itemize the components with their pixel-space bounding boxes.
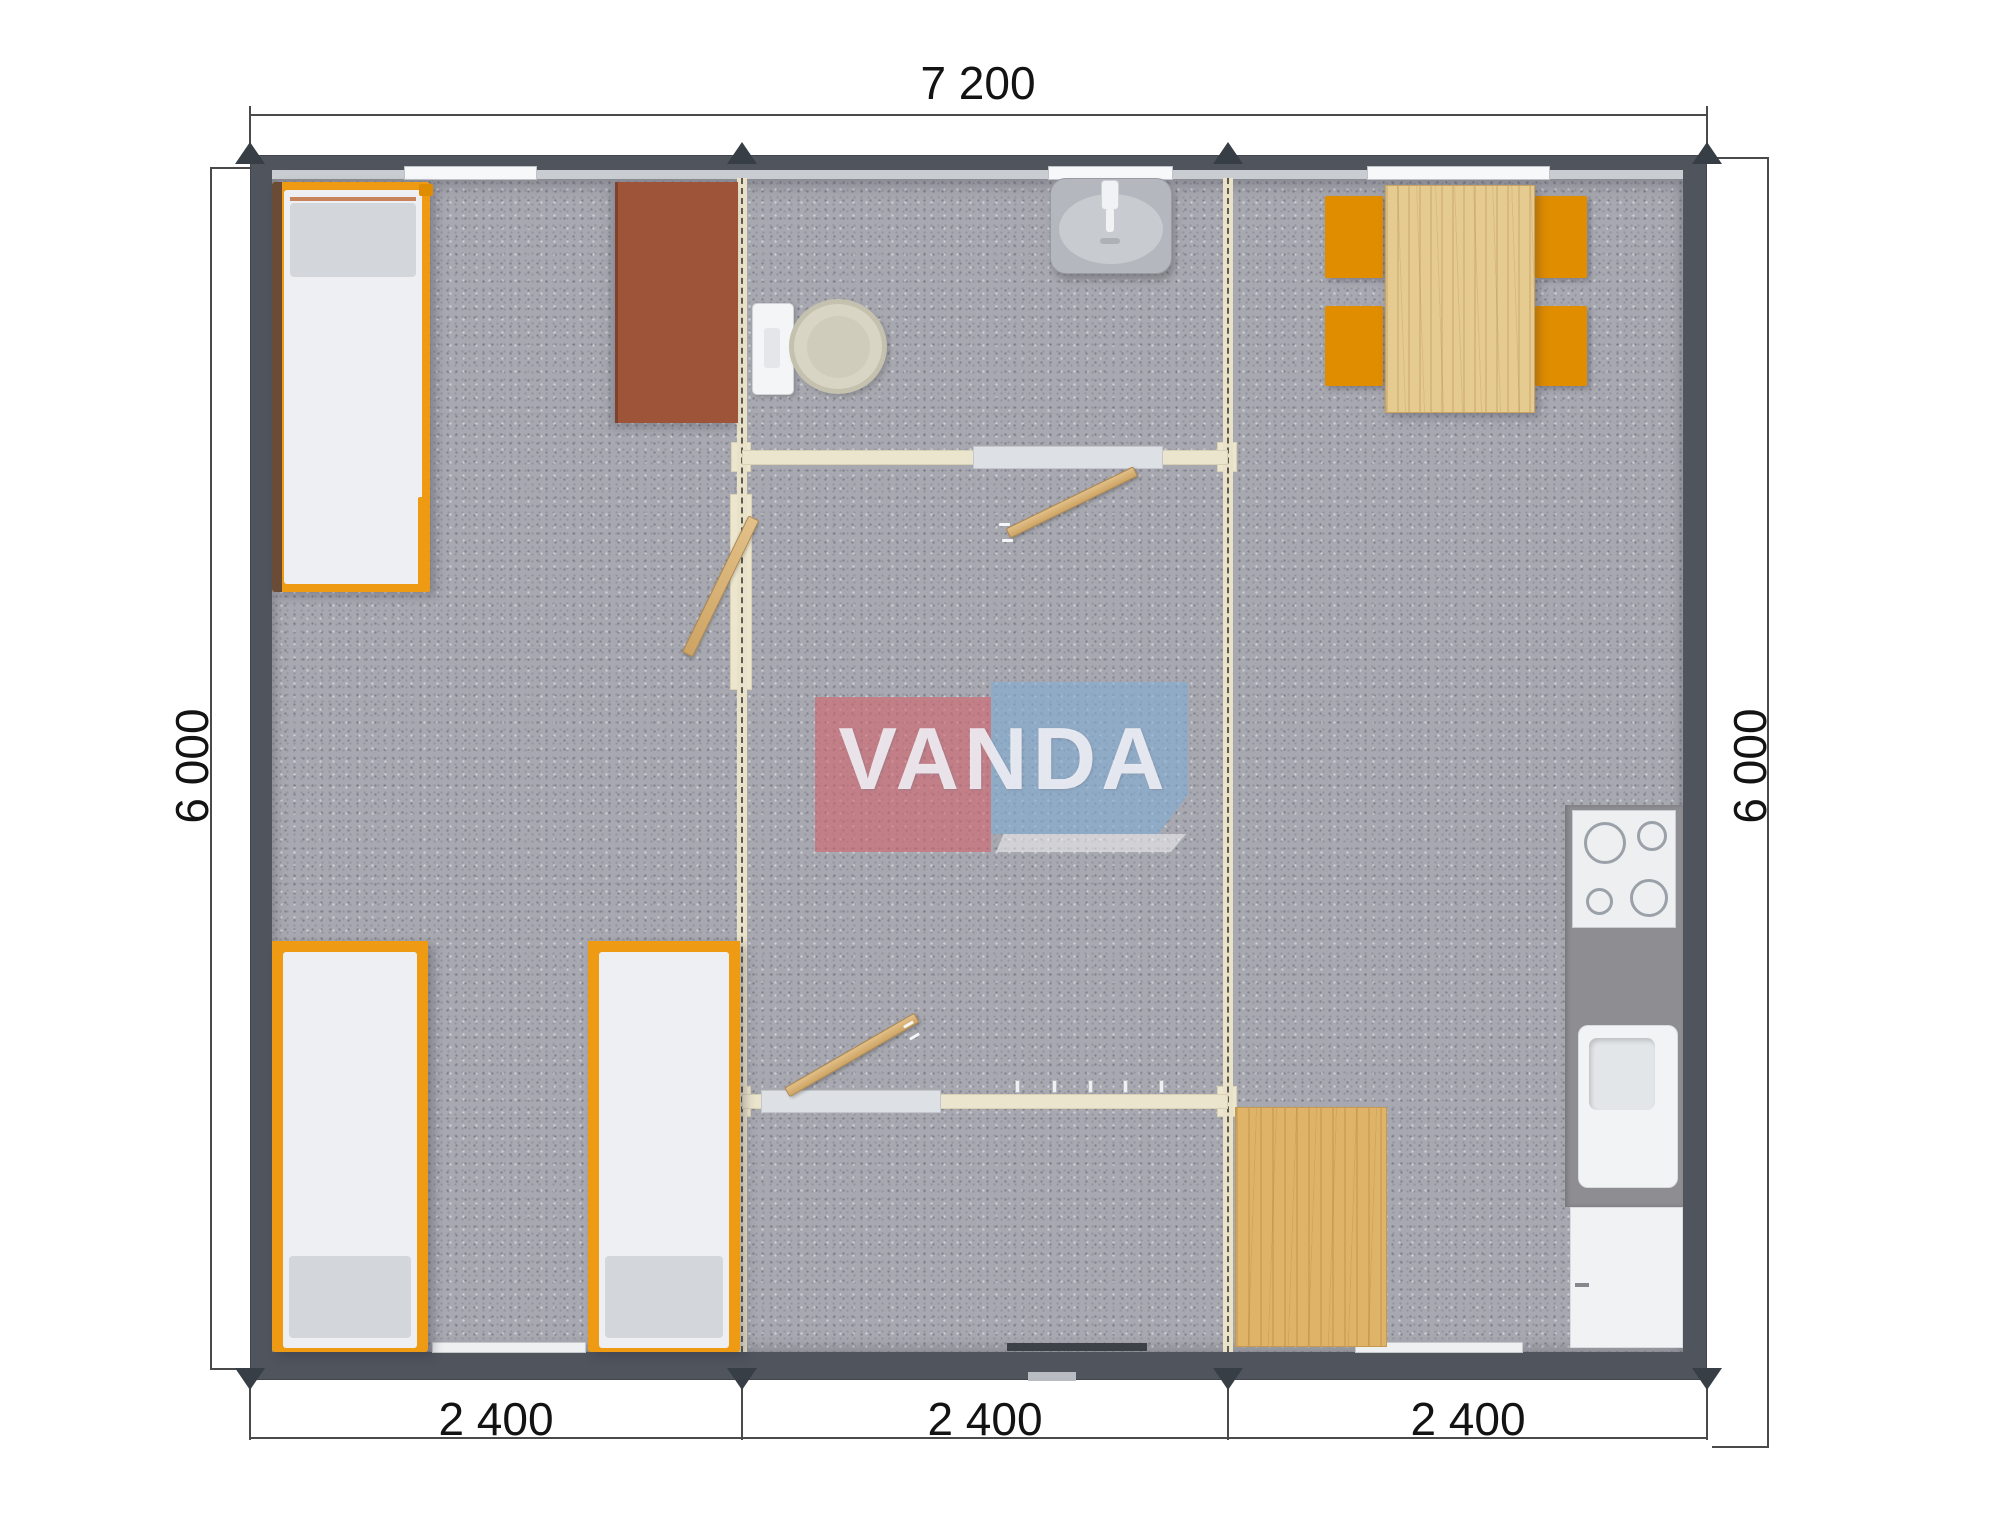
brand-logo: VANDA: [820, 708, 1188, 818]
dimension-arrow-icon: [727, 142, 757, 164]
dimension-arrow-icon: [1692, 1368, 1722, 1390]
bed-side-rail: [418, 941, 428, 1037]
pillow: [605, 1256, 723, 1338]
window-bottom-left-icon: [432, 1342, 586, 1353]
bed-side-rail: [418, 497, 430, 592]
bed-corner-post: [419, 184, 433, 196]
logo-shadow-strip: [996, 834, 1186, 852]
dimension-line-top: [250, 114, 1707, 116]
pillow: [289, 1256, 411, 1338]
dimension-label-height-left: 6 000: [165, 666, 219, 866]
extension-line: [1706, 1385, 1708, 1440]
extension-line: [1227, 1385, 1229, 1440]
dashed-joint-line: [741, 178, 743, 1352]
door-hinge-icon: [999, 523, 1010, 526]
washbasin-drain: [1100, 238, 1120, 244]
wall-hook-icon: [1123, 1080, 1128, 1093]
window-top-left-icon: [404, 166, 537, 180]
cabinet-handle: [1575, 1283, 1589, 1287]
toilet-seat: [807, 316, 870, 378]
dimension-label-width: 7 200: [878, 56, 1078, 110]
bathroom-sliding-door: [973, 446, 1163, 469]
extension-line: [249, 1385, 251, 1440]
wardrobe: [615, 182, 738, 423]
extension-line: [1712, 1446, 1769, 1448]
dimension-label-module-2: 2 400: [885, 1392, 1085, 1446]
wall-hook-icon: [1052, 1080, 1057, 1093]
dining-chair: [1325, 306, 1383, 386]
faucet-spout: [1106, 208, 1114, 232]
wall-hook-icon: [1088, 1080, 1093, 1093]
bed-side-rail: [272, 941, 282, 1037]
dining-chair: [1535, 196, 1587, 278]
kitchen-cabinet: [1570, 1207, 1683, 1348]
extension-line: [741, 1385, 743, 1440]
dimension-label-height-right: 6 000: [1723, 666, 1777, 866]
dimension-arrow-icon: [1213, 142, 1243, 164]
dimension-arrow-icon: [1213, 1368, 1243, 1390]
dimension-label-module-3: 2 400: [1368, 1392, 1568, 1446]
wall-hook-icon: [1159, 1080, 1164, 1093]
kitchen-sink-basin: [1589, 1038, 1655, 1110]
module-joint-line: [1223, 178, 1233, 1352]
burner-icon: [1586, 888, 1613, 915]
extension-line: [210, 167, 252, 169]
window-top-right-icon: [1367, 166, 1550, 180]
entrance-threshold: [1007, 1343, 1147, 1351]
pillow: [290, 203, 416, 277]
burner-icon: [1637, 821, 1667, 851]
wall-hook-icon: [1015, 1080, 1020, 1093]
dimension-label-module-1: 2 400: [396, 1392, 596, 1446]
burner-icon: [1630, 879, 1668, 917]
wooden-floor-mat: [1235, 1107, 1387, 1347]
dining-table: [1385, 185, 1535, 413]
bed-side-rail: [588, 941, 598, 1037]
bed-side-rail: [272, 182, 282, 592]
dashed-joint-line: [1227, 178, 1229, 1352]
dining-chair: [1535, 306, 1587, 386]
entrance-step: [1028, 1372, 1076, 1381]
dimension-arrow-icon: [1692, 142, 1722, 164]
bed-headboard-line: [290, 197, 416, 201]
dimension-arrow-icon: [235, 142, 265, 164]
dimension-arrow-icon: [235, 1368, 265, 1390]
faucet-icon: [1101, 180, 1119, 210]
toilet-flush-button: [764, 328, 780, 368]
door-hinge-icon: [1002, 539, 1013, 542]
dimension-arrow-icon: [727, 1368, 757, 1390]
dining-chair: [1325, 196, 1383, 278]
burner-icon: [1584, 822, 1626, 864]
bed-side-rail: [730, 941, 740, 1037]
